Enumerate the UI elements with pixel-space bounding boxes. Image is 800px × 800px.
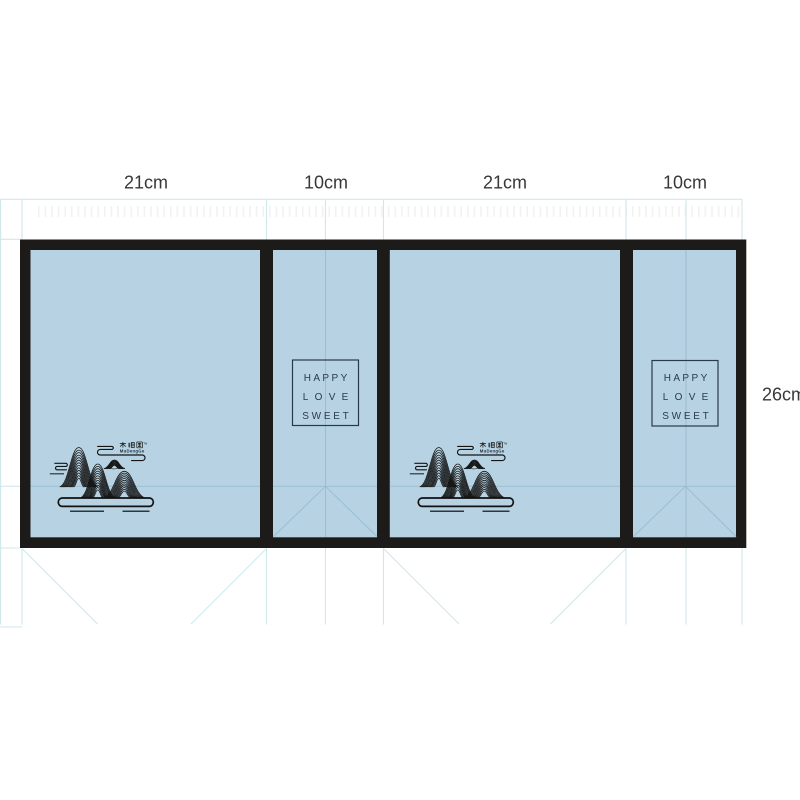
svg-text:MuDengGe: MuDengGe [120,449,145,454]
svg-text:LOVE: LOVE [663,392,715,403]
svg-text:21cm: 21cm [483,173,527,193]
svg-text:21cm: 21cm [124,173,168,193]
svg-text:SWEET: SWEET [302,411,351,422]
svg-text:LOVE: LOVE [303,392,355,403]
svg-text:26cm: 26cm [762,385,800,405]
svg-text:TM: TM [143,442,147,446]
svg-text:HAPPY: HAPPY [664,373,710,384]
svg-text:10cm: 10cm [304,173,348,193]
svg-text:10cm: 10cm [663,173,707,193]
svg-text:HAPPY: HAPPY [304,373,350,384]
svg-text:SWEET: SWEET [662,411,711,422]
